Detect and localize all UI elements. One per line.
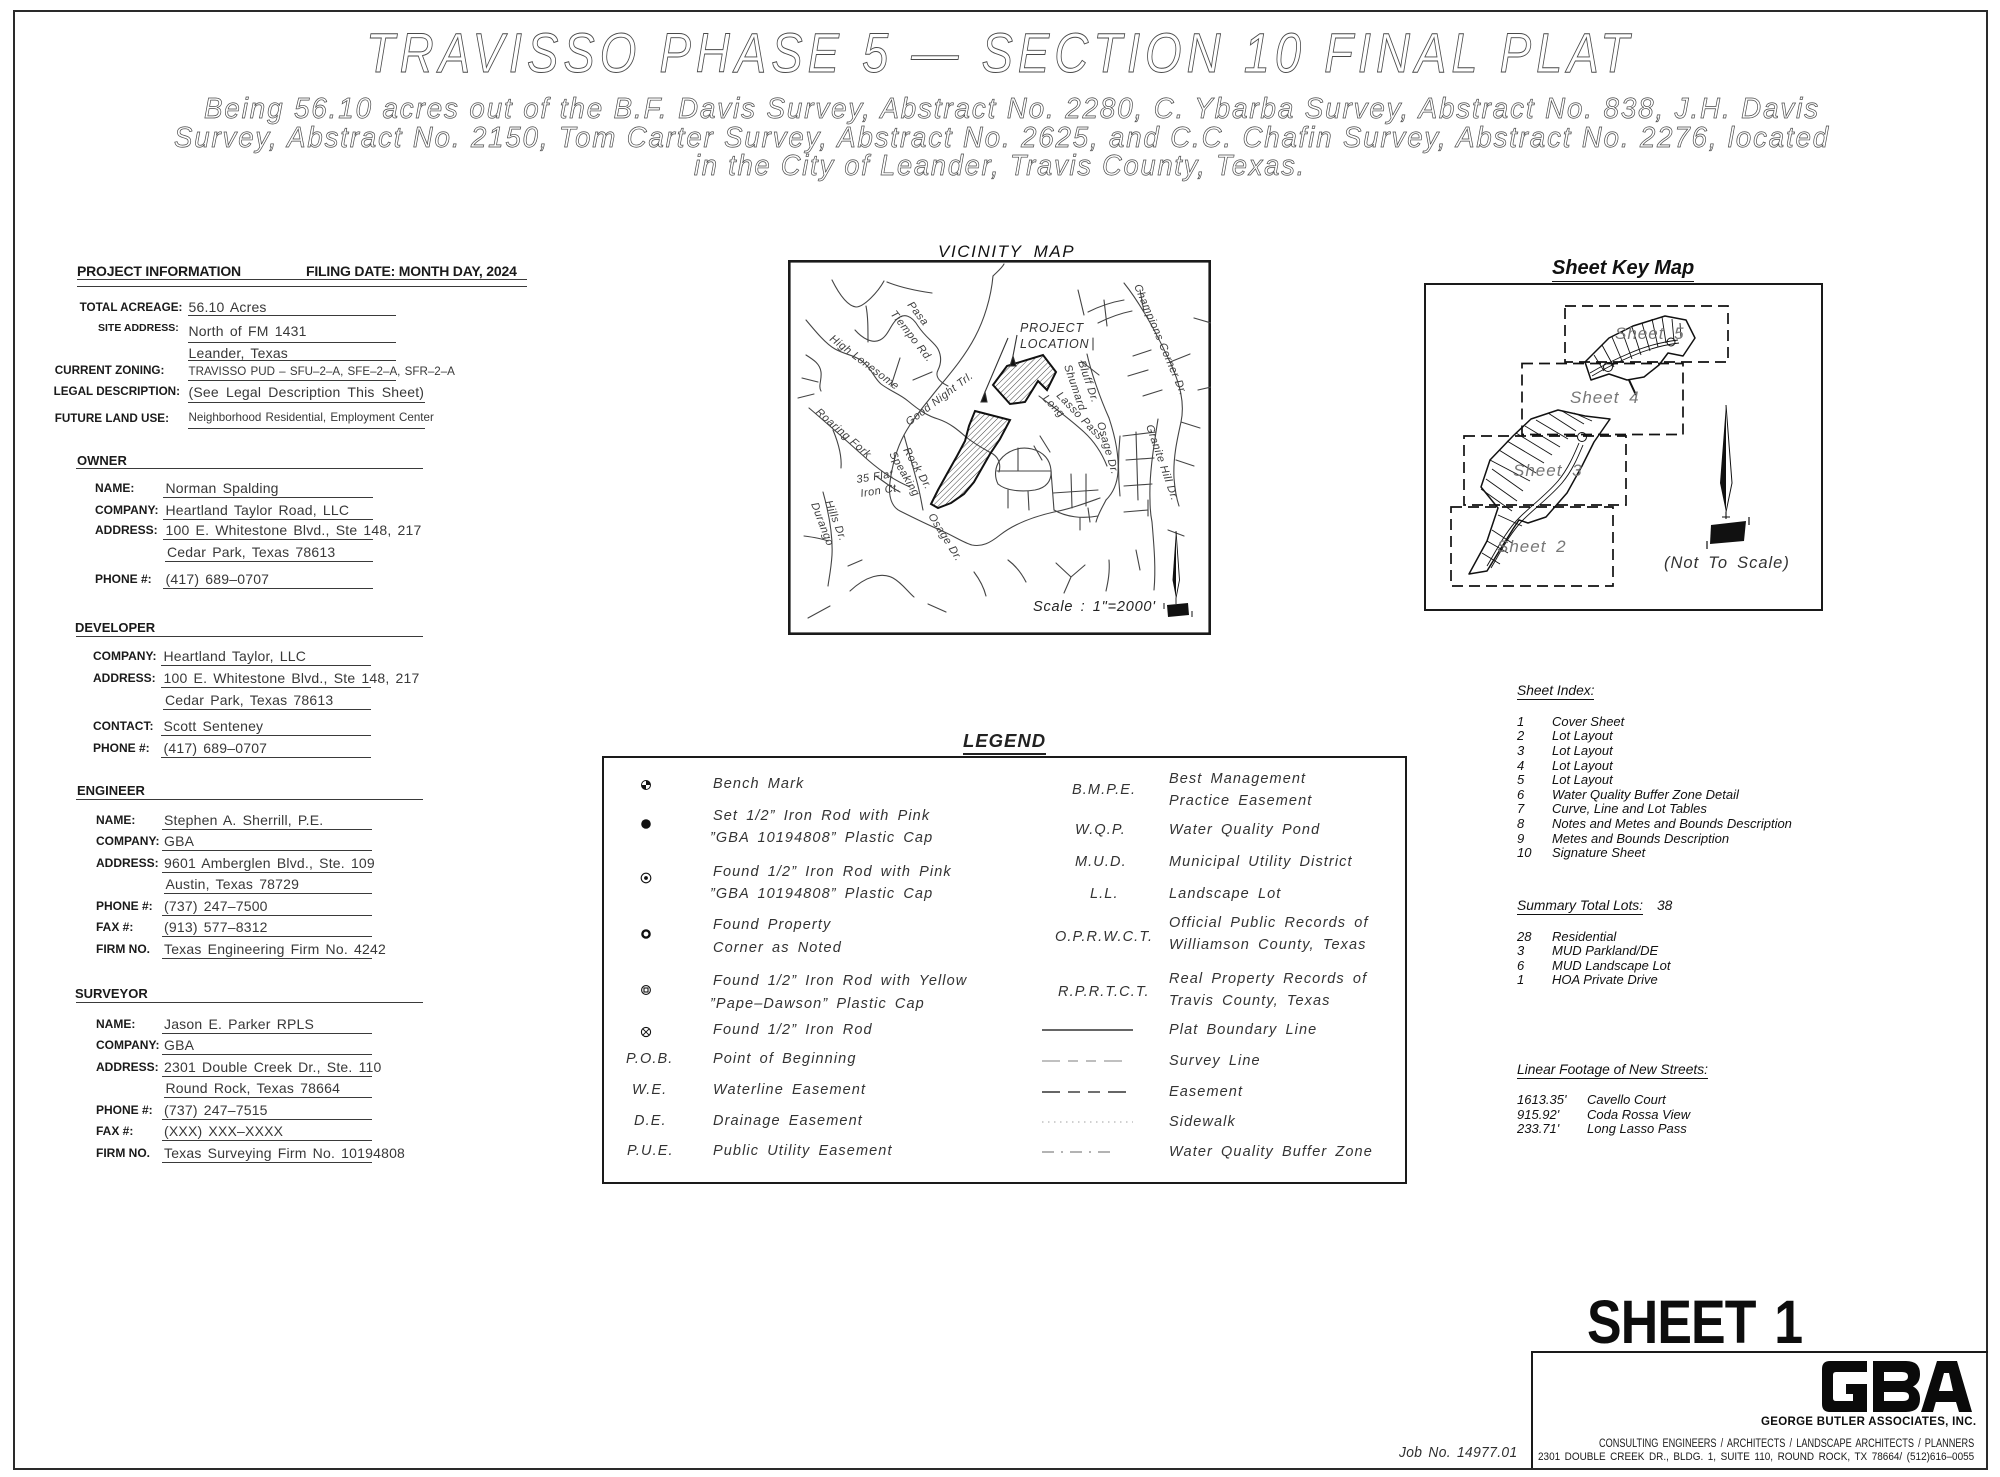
svg-text:in the City of Leander, Travis: in the City of Leander, Travis County, T… — [694, 150, 1306, 182]
svg-text:Sheet 2: Sheet 2 — [1497, 537, 1567, 556]
svg-text:TRAVISSO PHASE 5 — SECTION 10: TRAVISSO PHASE 5 — SECTION 10 FINAL PLAT — [366, 21, 1634, 84]
svg-text:Roaring Fork: Roaring Fork — [813, 406, 873, 461]
svg-text:LOCATION: LOCATION — [1020, 337, 1090, 351]
svg-text:Champions Corner Dr.: Champions Corner Dr. — [1131, 282, 1189, 397]
svg-text:High Lonesome: High Lonesome — [827, 333, 901, 393]
svg-text:Being 56.10 acres out of the B: Being 56.10 acres out of the B.F. Davis … — [204, 93, 1820, 125]
svg-text:Osage Dr.: Osage Dr. — [925, 511, 964, 563]
svg-text:PROJECT: PROJECT — [1020, 321, 1085, 335]
svg-text:Granite Hill Dr.: Granite Hill Dr. — [1143, 423, 1180, 502]
svg-text:Sheet 3: Sheet 3 — [1513, 461, 1583, 480]
svg-text:Sheet 4: Sheet 4 — [1570, 388, 1640, 407]
svg-text:(Not To Scale): (Not To Scale) — [1664, 554, 1790, 572]
svg-text:Sheet 5: Sheet 5 — [1615, 324, 1685, 343]
svg-text:Scale : 1"=2000': Scale : 1"=2000' — [1033, 599, 1156, 615]
